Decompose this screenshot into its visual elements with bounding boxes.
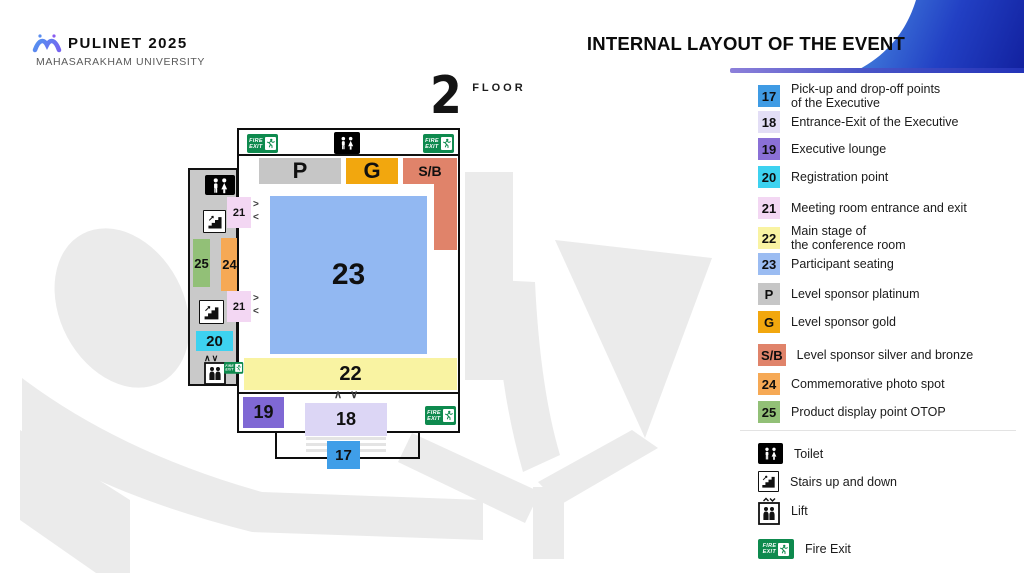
event-logo: PULINET 2025 MAHASARAKHAM UNIVERSITY: [32, 33, 205, 68]
meeting-direction-arrows: ><: [253, 292, 259, 318]
zone-otop-display: 25: [193, 239, 210, 287]
running-man-icon: [778, 543, 789, 556]
lift-icon: [758, 497, 780, 525]
legend-item: 17 Pick-up and drop-off pointsof the Exe…: [758, 82, 940, 110]
running-man-icon: [265, 137, 276, 150]
legend-facility: Toilet: [758, 443, 823, 464]
legend-item: 18 Entrance-Exit of the Executive: [758, 111, 958, 133]
legend-badge: 23: [758, 253, 780, 275]
zone-meeting-entrance-lower: 21: [227, 291, 251, 322]
fire-exit-sign: FIREEXIT: [423, 134, 454, 153]
lift-icon: [204, 362, 226, 390]
legend-facility: Lift: [758, 497, 808, 525]
legend-badge: 24: [758, 373, 780, 395]
legend-panel: 17 Pick-up and drop-off pointsof the Exe…: [733, 73, 1024, 576]
legend-badge: 18: [758, 111, 780, 133]
fire-exit-sign: FIREEXIT: [224, 362, 243, 374]
legend-item: P Level sponsor platinum: [758, 283, 920, 305]
running-man-icon: [235, 364, 242, 372]
meeting-direction-arrows: ><: [253, 198, 259, 224]
legend-facility: FIREEXIT Fire Exit: [758, 539, 851, 559]
entrance-steps: [306, 437, 386, 440]
entrance-direction-arrows: ∧∨: [334, 388, 366, 401]
fire-exit-sign: FIREEXIT: [425, 406, 456, 425]
legend-badge: 20: [758, 166, 780, 188]
legend-item: 20 Registration point: [758, 166, 888, 188]
legend-badge: 19: [758, 138, 780, 160]
map-main-room: FIREEXIT FIREEXIT P G S/B 23 22 19 ∧∨ 18…: [237, 128, 460, 433]
legend-item: 21 Meeting room entrance and exit: [758, 197, 967, 219]
running-man-icon: [441, 137, 452, 150]
page-title: INTERNAL LAYOUT OF THE EVENT: [560, 33, 905, 55]
toilet-icon: [758, 443, 783, 464]
room-top-divider: [239, 154, 458, 156]
toilet-icon: [205, 175, 235, 195]
stairs-icon: [199, 300, 224, 324]
zone-participant-seating: 23: [270, 196, 427, 354]
zone-main-stage: 22: [244, 358, 457, 390]
toilet-icon: [334, 132, 360, 154]
fire-exit-icon: FIREEXIT: [758, 539, 794, 559]
legend-item: 22 Main stage ofthe conference room: [758, 224, 906, 252]
running-man-icon: [443, 409, 454, 422]
zone-pickup-dropoff: 17: [327, 441, 360, 469]
legend-badge: 25: [758, 401, 780, 423]
zone-sponsor-platinum: P: [259, 158, 341, 184]
floor-label: FLOOR: [472, 82, 526, 94]
zone-sponsor-silver-bronze-wing: [434, 184, 457, 250]
pulinet-logo-icon: [32, 33, 62, 53]
poster-canvas: { "header": { "logo_title": "PULINET 202…: [0, 0, 1024, 576]
legend-item: 25 Product display point OTOP: [758, 401, 946, 423]
zone-meeting-entrance-upper: 21: [227, 197, 251, 228]
zone-registration: 20: [196, 331, 233, 351]
legend-badge: S/B: [758, 344, 786, 366]
legend-item: 24 Commemorative photo spot: [758, 373, 945, 395]
legend-badge: 17: [758, 85, 780, 107]
zone-sponsor-gold: G: [346, 158, 398, 184]
stairs-icon: [203, 210, 226, 233]
legend-facility: Stairs up and down: [758, 471, 897, 492]
floor-badge: 2 FLOOR: [430, 72, 526, 120]
legend-badge: P: [758, 283, 780, 305]
legend-item: 23 Participant seating: [758, 253, 894, 275]
fire-exit-sign: FIREEXIT: [247, 134, 278, 153]
legend-badge: 22: [758, 227, 780, 249]
logo-title: PULINET 2025: [68, 35, 188, 52]
zone-photo-spot: 24: [221, 238, 238, 291]
legend-item: S/B Level sponsor silver and bronze: [758, 344, 973, 366]
legend-divider: [740, 430, 1016, 431]
floor-number: 2: [430, 72, 462, 120]
legend-item: G Level sponsor gold: [758, 311, 896, 333]
legend-badge: G: [758, 311, 780, 333]
zone-sponsor-silver-bronze: S/B: [403, 158, 457, 184]
legend-item: 19 Executive lounge: [758, 138, 886, 160]
zone-executive-lounge: 19: [243, 397, 284, 428]
legend-badge: 21: [758, 197, 780, 219]
logo-subtitle: MAHASARAKHAM UNIVERSITY: [36, 56, 205, 68]
stairs-icon: [758, 471, 779, 492]
